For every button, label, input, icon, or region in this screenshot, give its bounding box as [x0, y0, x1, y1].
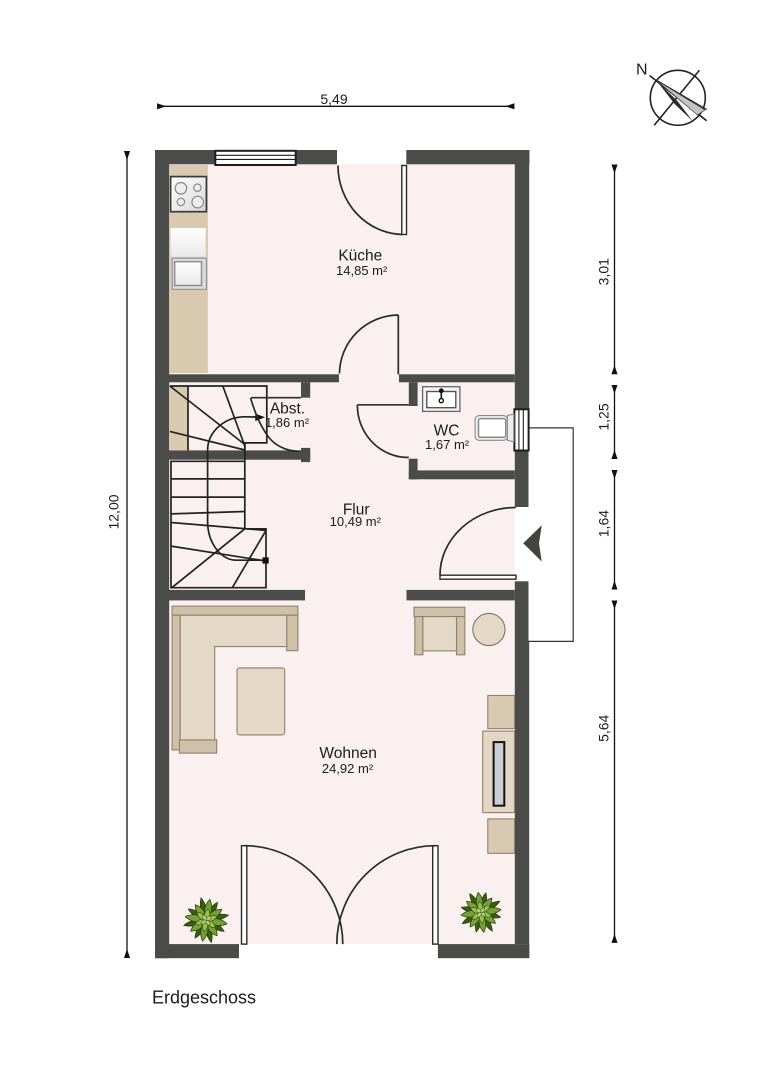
svg-text:10,49 m²: 10,49 m²	[330, 514, 382, 529]
svg-text:N: N	[636, 62, 648, 79]
svg-text:1,25: 1,25	[596, 403, 612, 430]
svg-text:Erdgeschoss: Erdgeschoss	[152, 988, 256, 1008]
svg-text:5,49: 5,49	[320, 91, 347, 107]
svg-text:3,01: 3,01	[596, 258, 612, 285]
svg-text:1,67 m²: 1,67 m²	[425, 437, 470, 452]
svg-text:14,85 m²: 14,85 m²	[336, 263, 388, 278]
svg-text:Wohnen: Wohnen	[319, 745, 376, 762]
svg-text:1,64: 1,64	[596, 510, 612, 537]
svg-text:5,64: 5,64	[596, 714, 612, 741]
svg-text:12,00: 12,00	[106, 494, 122, 529]
svg-text:1,86 m²: 1,86 m²	[265, 415, 310, 430]
svg-text:24,92 m²: 24,92 m²	[322, 761, 374, 776]
